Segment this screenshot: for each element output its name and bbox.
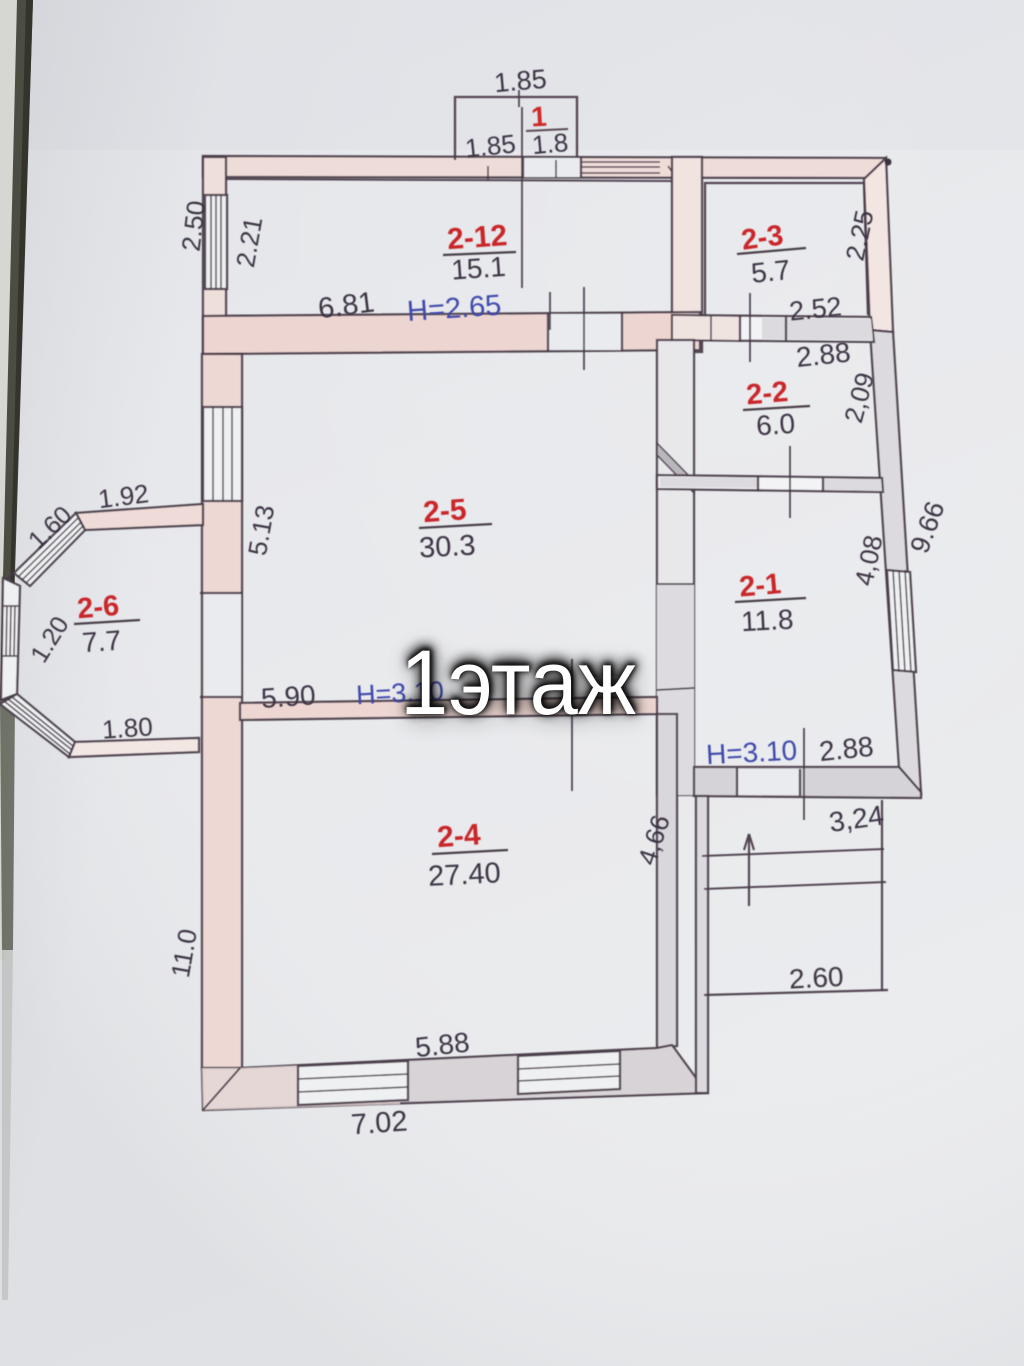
svg-text:1.80: 1.80: [101, 711, 154, 744]
svg-text:2.50: 2.50: [176, 199, 212, 253]
svg-text:1.85: 1.85: [493, 64, 548, 98]
svg-text:2.88: 2.88: [795, 336, 852, 373]
svg-text:2-5: 2-5: [422, 493, 468, 529]
svg-text:6.0: 6.0: [755, 408, 796, 442]
svg-text:27.40: 27.40: [427, 857, 501, 893]
svg-text:2.52: 2.52: [788, 291, 843, 326]
svg-text:2-1: 2-1: [738, 568, 783, 604]
svg-text:1.85: 1.85: [464, 128, 517, 163]
svg-text:7.02: 7.02: [350, 1105, 409, 1141]
svg-text:5.90: 5.90: [260, 679, 317, 714]
svg-text:2.60: 2.60: [788, 961, 844, 995]
svg-text:30.3: 30.3: [418, 530, 476, 565]
svg-text:6.81: 6.81: [316, 287, 376, 326]
svg-text:2-6: 2-6: [76, 590, 121, 626]
svg-text:7.7: 7.7: [81, 625, 122, 659]
svg-text:5.7: 5.7: [750, 254, 792, 289]
svg-text:15.1: 15.1: [450, 251, 507, 286]
svg-text:1.92: 1.92: [96, 478, 150, 514]
svg-text:1: 1: [530, 101, 547, 133]
svg-text:1этаж: 1этаж: [400, 632, 636, 734]
svg-text:H=3.10: H=3.10: [705, 735, 798, 771]
svg-text:H=2.65: H=2.65: [406, 289, 502, 328]
svg-text:2-2: 2-2: [745, 376, 790, 412]
svg-text:5.88: 5.88: [414, 1027, 471, 1064]
svg-text:11.8: 11.8: [740, 604, 794, 638]
svg-text:2-4: 2-4: [436, 818, 482, 854]
svg-text:2.88: 2.88: [818, 731, 875, 768]
